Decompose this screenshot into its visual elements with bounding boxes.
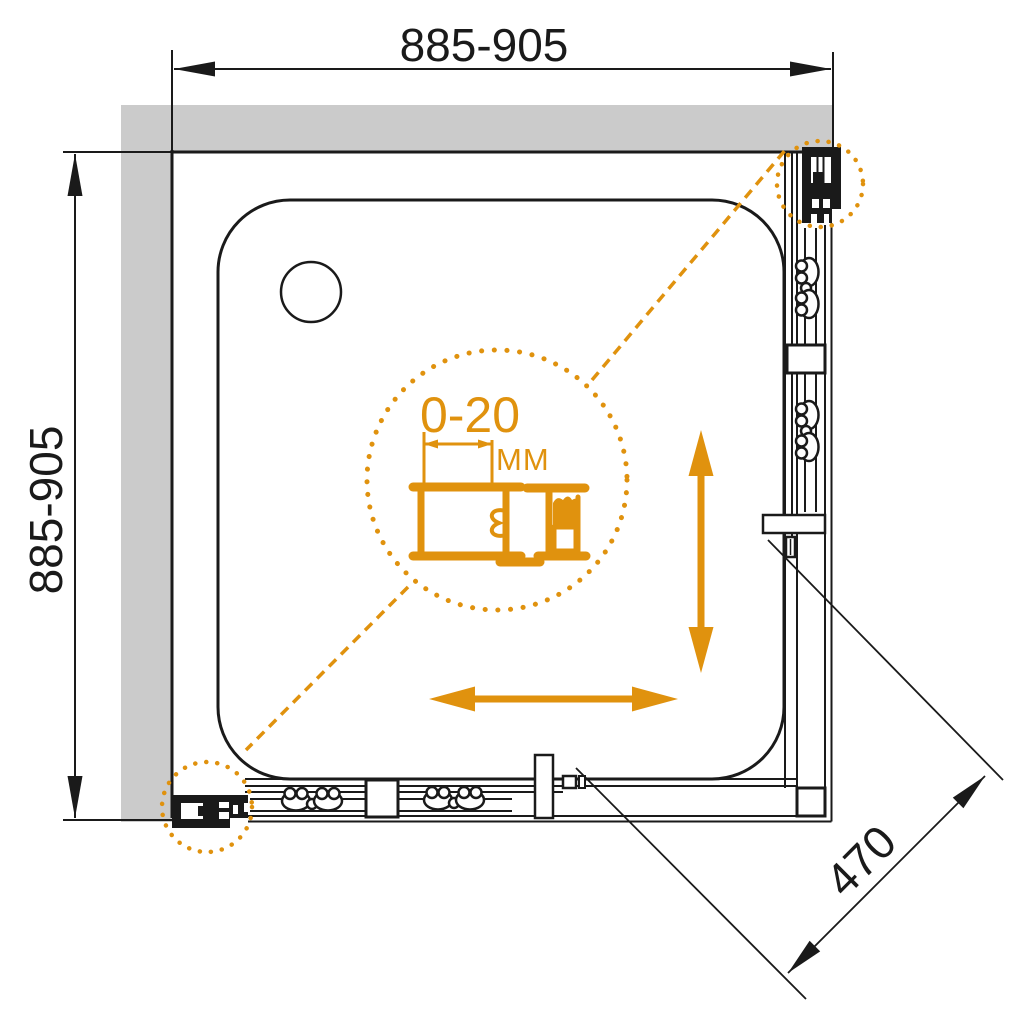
right-door-track bbox=[785, 152, 832, 822]
height-dimension-label: 885-905 bbox=[20, 426, 72, 595]
top-wall bbox=[121, 105, 832, 152]
drain-circle bbox=[281, 262, 341, 322]
corner-fitting-top-right bbox=[802, 147, 841, 223]
adjustment-unit-label: MM bbox=[496, 442, 550, 477]
door-edge-right bbox=[786, 537, 795, 557]
extension-line bbox=[768, 540, 1003, 780]
arrowhead-left bbox=[174, 62, 215, 77]
wall-anchor-blob bbox=[553, 497, 578, 526]
corner-post bbox=[797, 788, 825, 816]
left-wall bbox=[121, 105, 172, 822]
technical-drawing-page: 885-905 885-905 bbox=[0, 0, 1030, 1024]
wall-bracket-right bbox=[787, 345, 825, 373]
arrowhead-top bbox=[68, 154, 83, 196]
arrowhead-right bbox=[790, 62, 831, 77]
arrowhead-bottom bbox=[68, 776, 83, 818]
door-handle-bottom bbox=[535, 755, 553, 818]
width-dimension-label: 885-905 bbox=[400, 19, 569, 71]
door-roller bbox=[424, 787, 484, 810]
adjustment-detail: 0-20 MM bbox=[367, 350, 627, 610]
corner-fitting-bottom-left bbox=[172, 795, 248, 828]
extension-line bbox=[576, 768, 806, 999]
wall-bracket-bottom bbox=[366, 780, 398, 817]
adjustment-value-label: 0-20 bbox=[420, 387, 520, 443]
entry-opening-label: 470 bbox=[815, 815, 906, 906]
door-handle-right bbox=[763, 515, 825, 533]
shower-enclosure-diagram: 885-905 885-905 bbox=[0, 0, 1030, 1024]
door-edge-bottom bbox=[563, 776, 585, 788]
